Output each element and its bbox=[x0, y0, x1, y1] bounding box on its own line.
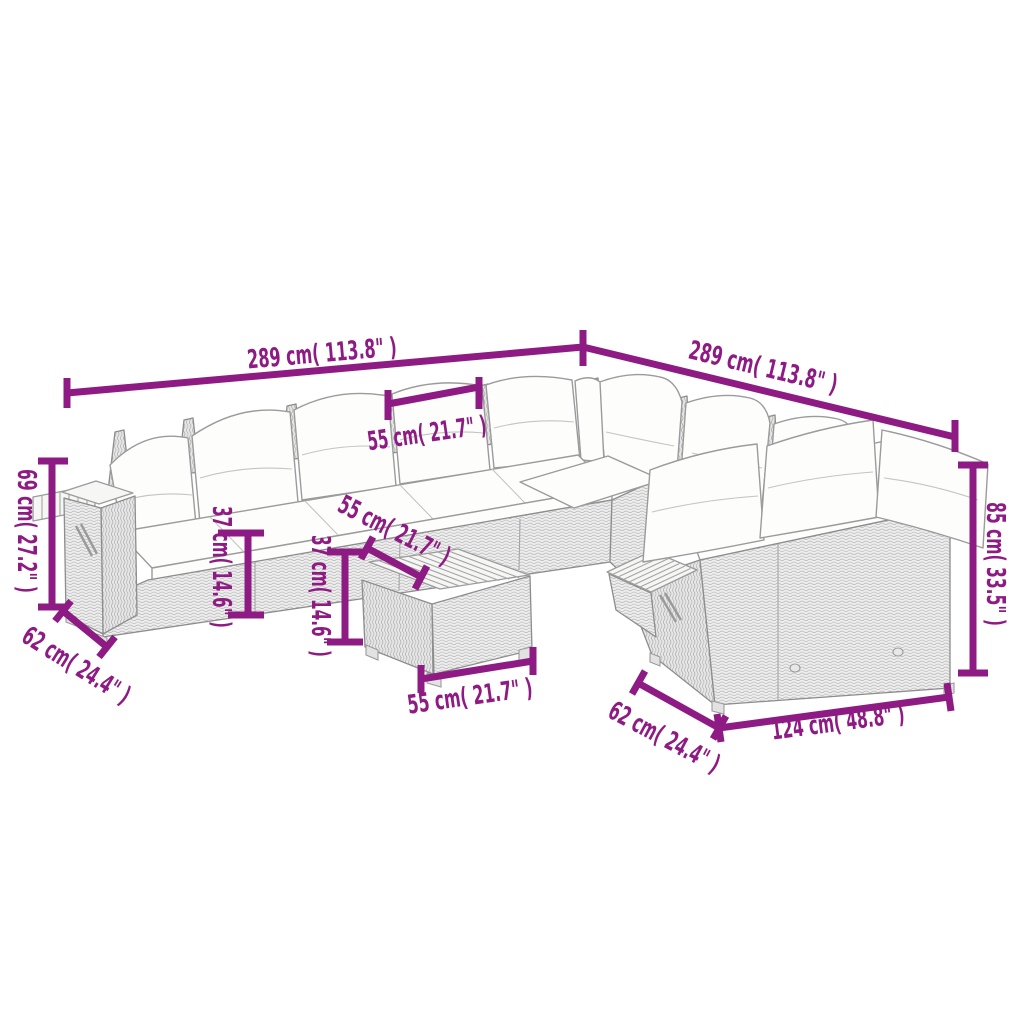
dim-label-arm-height: 69 cm( 27.2" ) bbox=[11, 469, 41, 593]
dim-label-bench-width: 124 cm( 48.8" ) bbox=[770, 699, 907, 746]
back-cushion bbox=[486, 376, 580, 468]
diagram-canvas: 289 cm( 113.8" ) 289 cm( 113.8" ) 55 cm(… bbox=[0, 0, 1024, 1024]
dim-label-seat-height-left: 37 cm( 14.6" ) bbox=[206, 506, 236, 628]
dim-label-seat-height-middle: 37 cm( 14.6" ) bbox=[305, 535, 335, 657]
table-left-face bbox=[362, 580, 433, 674]
dim-arm-height-left: 69 cm( 27.2" ) bbox=[11, 461, 68, 607]
dim-label-depth-right: 62 cm( 24.4" ) bbox=[603, 696, 725, 780]
armrest-side bbox=[101, 496, 137, 634]
product-dimension-diagram: 289 cm( 113.8" ) 289 cm( 113.8" ) 55 cm(… bbox=[0, 0, 1024, 1024]
dim-label-back-height: 85 cm( 33.5" ) bbox=[980, 502, 1010, 626]
table-front-face bbox=[432, 576, 532, 674]
screw bbox=[893, 648, 903, 656]
screw bbox=[790, 664, 800, 672]
